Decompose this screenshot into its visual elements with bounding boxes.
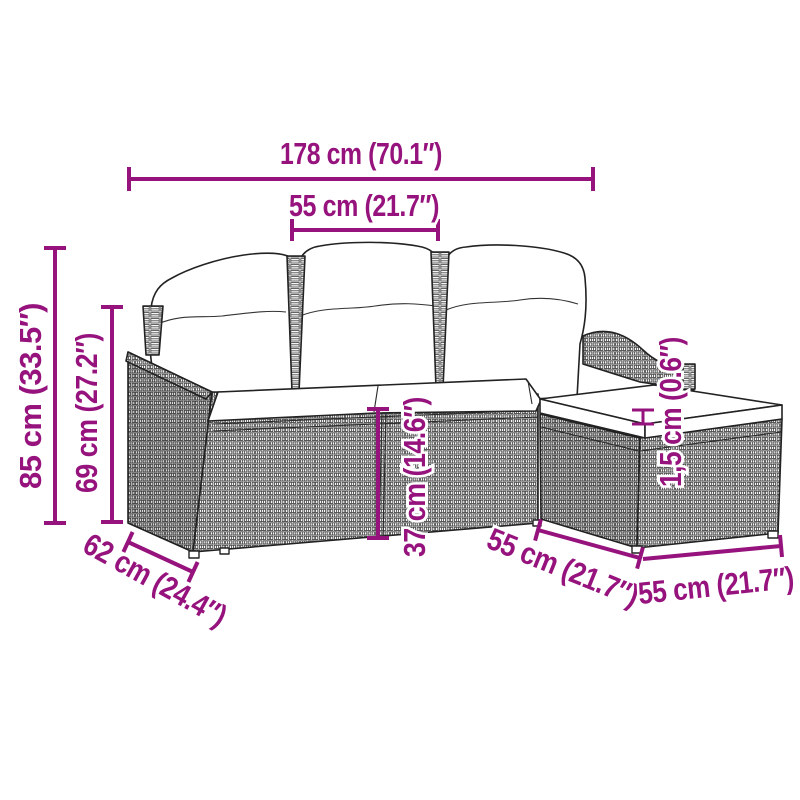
dimension-label: 37 cm (14.6″) bbox=[397, 397, 432, 557]
dimension-label: 55 cm (21.7″) bbox=[289, 188, 439, 223]
foot bbox=[220, 548, 229, 554]
dim-total-width: 178 cm (70.1″) bbox=[129, 136, 593, 191]
diagram-canvas: 178 cm (70.1″) 55 cm (21.7″) 85 cm (33.5… bbox=[0, 0, 800, 800]
dim-footstool-width: 55 cm (21.7″) bbox=[637, 535, 796, 611]
dim-seat-width: 55 cm (21.7″) bbox=[289, 188, 439, 241]
back-cushion-right bbox=[440, 245, 586, 400]
product-dimension-diagram: 178 cm (70.1″) 55 cm (21.7″) 85 cm (33.5… bbox=[0, 0, 800, 800]
dimension-label: 1,5 cm (0.6″) bbox=[653, 337, 688, 487]
back-post-strip bbox=[143, 306, 163, 355]
dim-back-height: 69 cm (27.2″) bbox=[69, 307, 123, 522]
foot bbox=[189, 551, 199, 558]
back-cushion-middle bbox=[294, 242, 440, 402]
dimension-line bbox=[101, 307, 123, 522]
dim-total-height: 85 cm (33.5″) bbox=[13, 248, 66, 523]
dimension-label: 69 cm (27.2″) bbox=[69, 333, 104, 493]
dimension-label: 178 cm (70.1″) bbox=[280, 136, 442, 171]
foot bbox=[768, 531, 778, 538]
dimension-label: 55 cm (21.7″) bbox=[637, 560, 796, 611]
dimension-label: 85 cm (33.5″) bbox=[13, 303, 48, 489]
dim-seat-height: 37 cm (14.6″) bbox=[367, 397, 432, 557]
